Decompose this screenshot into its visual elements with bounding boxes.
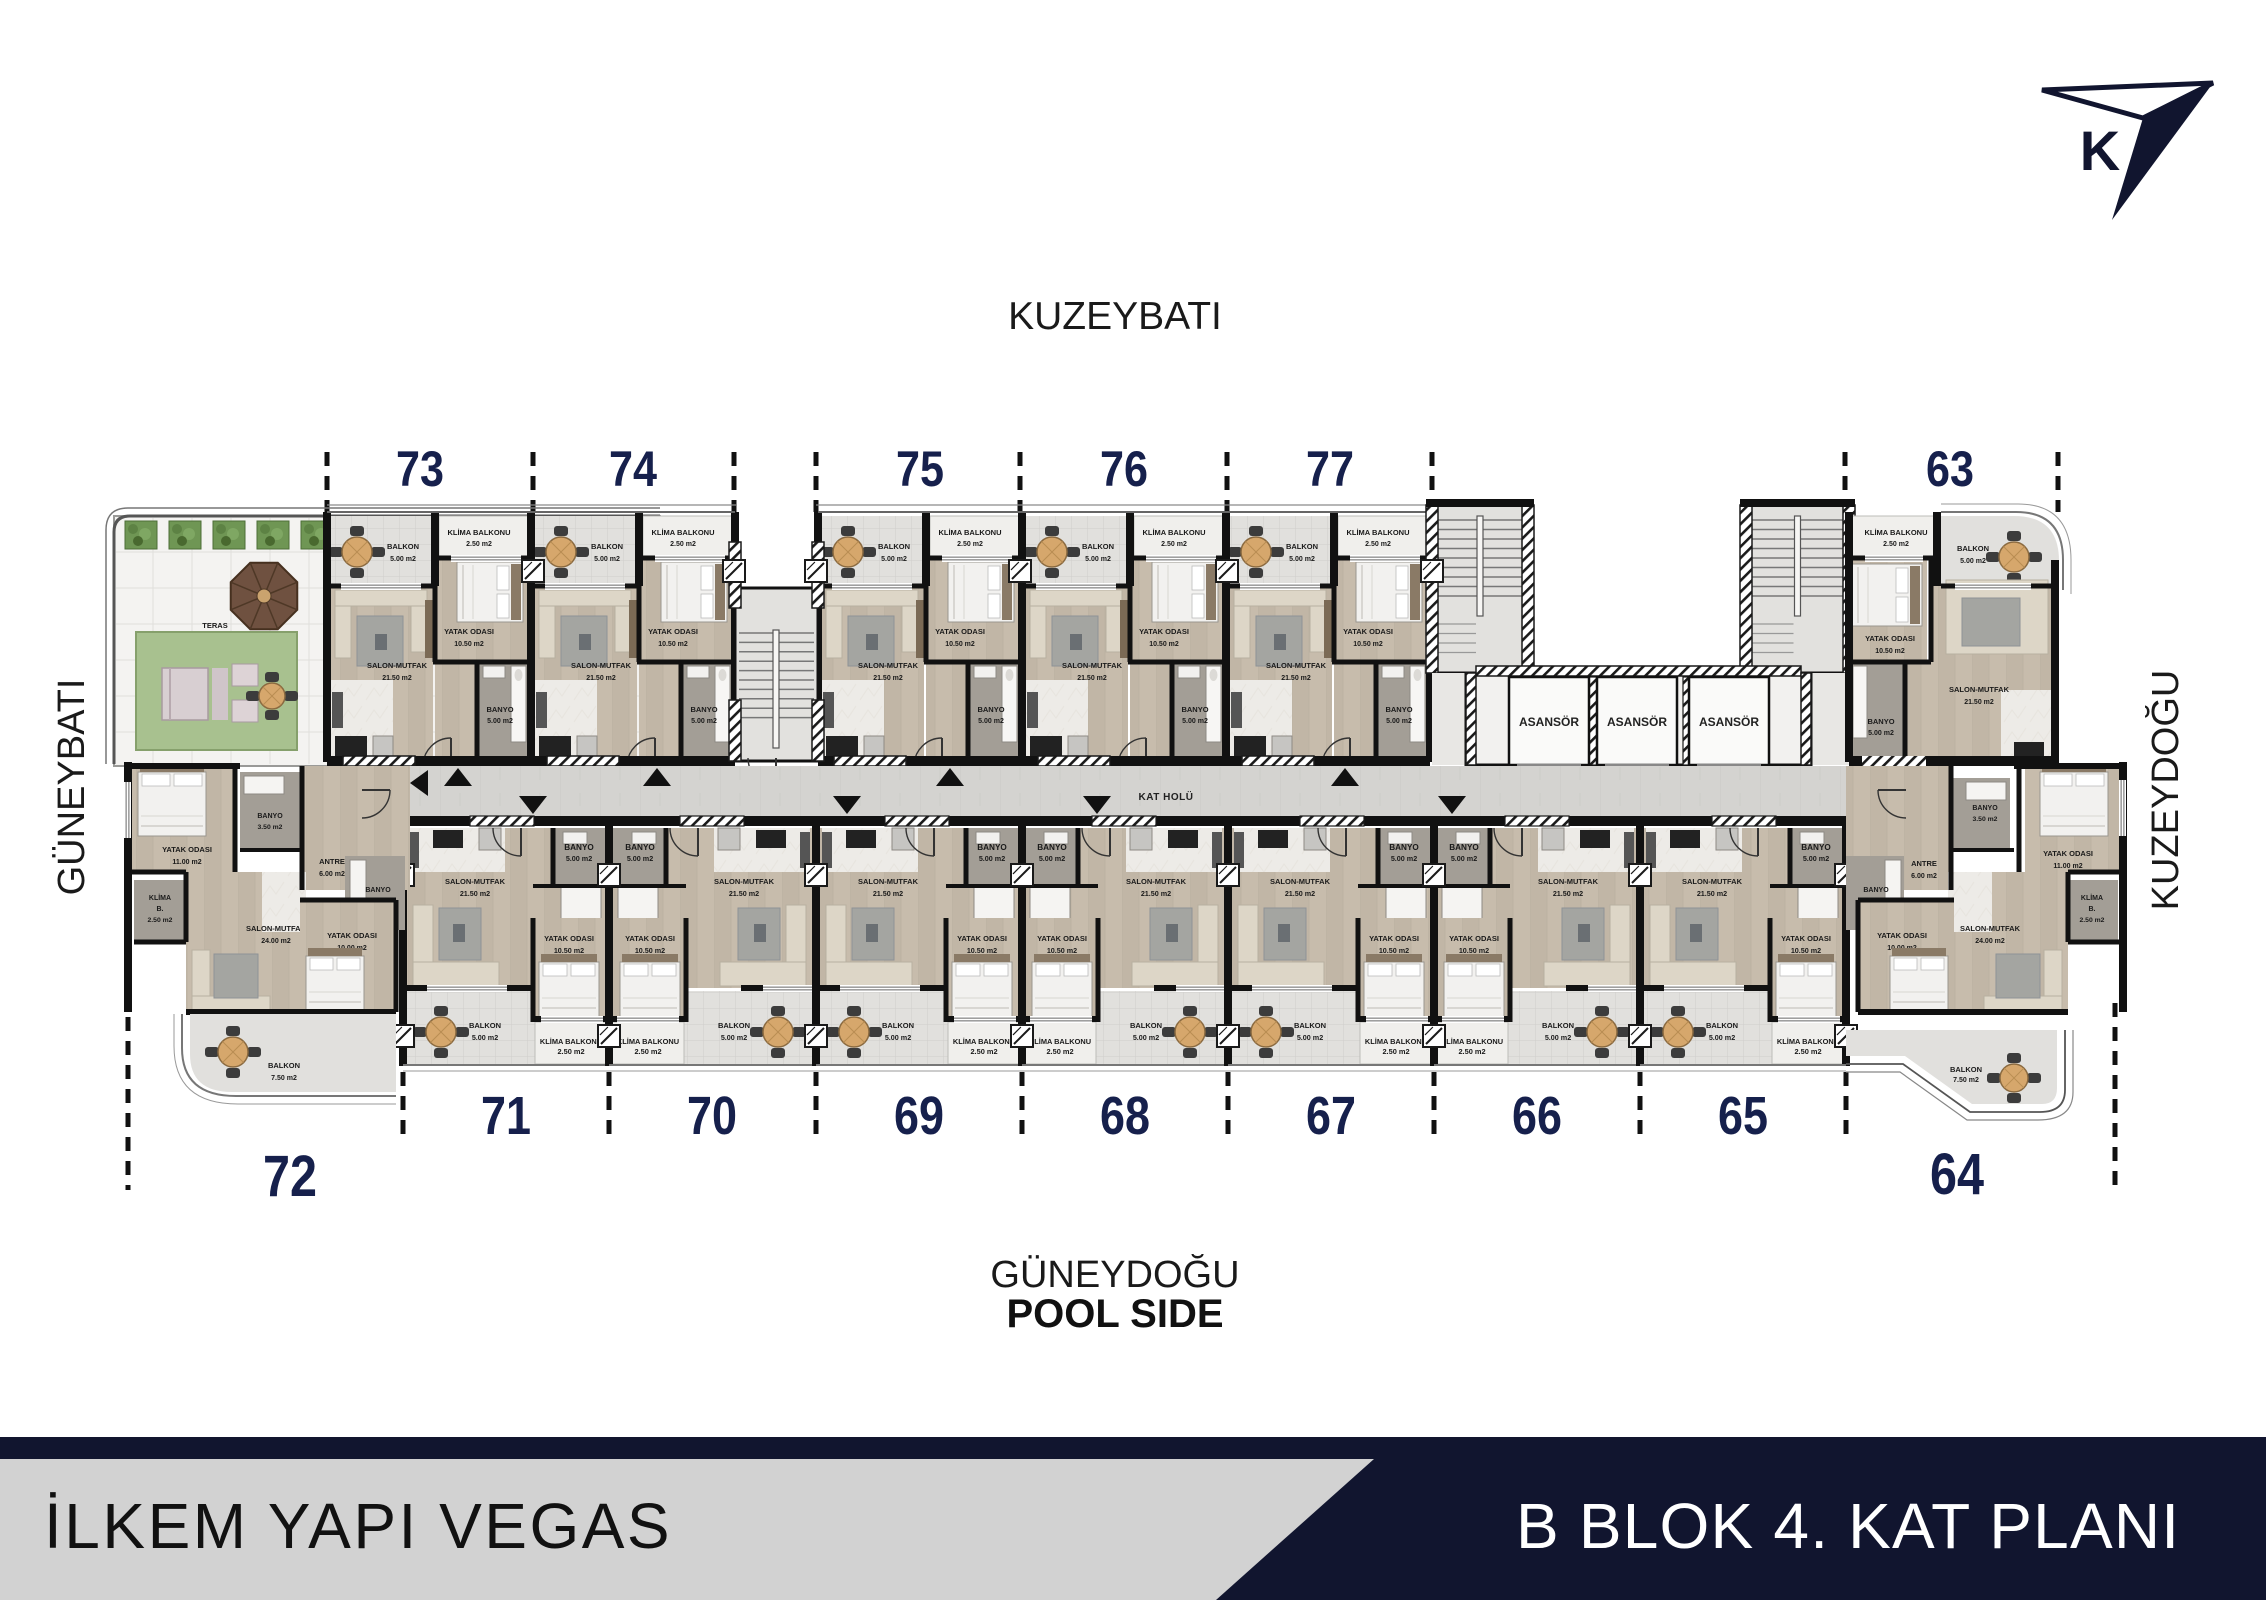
svg-text:BANYO: BANYO <box>1037 843 1067 852</box>
svg-text:SALON-MUTFAK: SALON-MUTFAK <box>858 877 919 886</box>
svg-text:21.50 m2: 21.50 m2 <box>1141 889 1171 898</box>
svg-text:BANYO: BANYO <box>1385 705 1412 714</box>
svg-text:5.00 m2: 5.00 m2 <box>1868 730 1894 737</box>
svg-text:BANYO: BANYO <box>977 843 1007 852</box>
svg-text:ASANSÖR: ASANSÖR <box>1699 714 1759 729</box>
svg-text:KLİMA BALKONU: KLİMA BALKONU <box>1864 528 1927 537</box>
svg-text:KLİMA BALKONU: KLİMA BALKONU <box>447 528 510 537</box>
svg-text:21.50 m2: 21.50 m2 <box>1077 675 1107 682</box>
svg-text:YATAK ODASI: YATAK ODASI <box>1343 627 1393 636</box>
svg-text:10.50 m2: 10.50 m2 <box>1149 641 1179 648</box>
svg-text:11.00 m2: 11.00 m2 <box>2053 863 2082 870</box>
svg-text:BANYO: BANYO <box>1181 705 1208 714</box>
svg-text:ANTRE: ANTRE <box>319 857 345 866</box>
svg-text:SALON-MUTFAK: SALON-MUTFAK <box>246 924 307 933</box>
svg-text:2.50 m2: 2.50 m2 <box>2080 917 2105 924</box>
svg-text:YATAK ODASI: YATAK ODASI <box>625 934 675 943</box>
svg-text:KLİMA BALKONU: KLİMA BALKONU <box>1346 528 1409 537</box>
svg-text:73: 73 <box>396 441 444 497</box>
svg-text:YATAK ODASI: YATAK ODASI <box>1865 634 1915 643</box>
svg-text:BALKON: BALKON <box>1957 544 1989 553</box>
svg-text:10.50 m2: 10.50 m2 <box>1353 641 1383 648</box>
svg-text:BANYO: BANYO <box>1867 717 1894 726</box>
svg-text:5.00 m2: 5.00 m2 <box>487 718 513 725</box>
svg-text:21.50 m2: 21.50 m2 <box>1697 889 1727 898</box>
svg-text:24.00 m2: 24.00 m2 <box>1975 938 2005 945</box>
svg-text:5.00 m2: 5.00 m2 <box>1451 854 1477 863</box>
svg-text:75: 75 <box>896 441 944 497</box>
svg-text:69: 69 <box>894 1086 944 1146</box>
svg-text:21.50 m2: 21.50 m2 <box>382 675 412 682</box>
svg-text:BALKON: BALKON <box>882 1021 914 1030</box>
svg-text:KLİMA BALKONU: KLİMA BALKONU <box>1441 1037 1503 1046</box>
svg-text:BANYO: BANYO <box>1389 843 1419 852</box>
svg-text:BANYO: BANYO <box>1801 843 1831 852</box>
svg-text:10.50 m2: 10.50 m2 <box>635 946 665 955</box>
svg-text:5.00 m2: 5.00 m2 <box>1039 854 1065 863</box>
svg-text:2.50 m2: 2.50 m2 <box>1794 1047 1821 1056</box>
svg-text:5.00 m2: 5.00 m2 <box>978 718 1004 725</box>
svg-text:66: 66 <box>1512 1086 1562 1146</box>
svg-text:2.50 m2: 2.50 m2 <box>1382 1047 1409 1056</box>
svg-text:65: 65 <box>1718 1086 1768 1146</box>
svg-text:5.00 m2: 5.00 m2 <box>390 556 416 563</box>
svg-text:BANYO: BANYO <box>1863 887 1889 894</box>
svg-text:POOL SIDE: POOL SIDE <box>1006 1292 1223 1336</box>
svg-text:BALKON: BALKON <box>1950 1065 1982 1074</box>
svg-text:5.00 m2: 5.00 m2 <box>627 854 653 863</box>
svg-text:2.50 m2: 2.50 m2 <box>1046 1047 1073 1056</box>
svg-text:BALKON: BALKON <box>469 1021 501 1030</box>
svg-text:10.50 m2: 10.50 m2 <box>1379 946 1409 955</box>
svg-text:5.00 m2: 5.00 m2 <box>1133 1033 1159 1042</box>
svg-text:BALKON: BALKON <box>718 1021 750 1030</box>
svg-text:5.00 m2: 5.00 m2 <box>1803 854 1829 863</box>
svg-text:21.50 m2: 21.50 m2 <box>1553 889 1583 898</box>
svg-text:21.50 m2: 21.50 m2 <box>873 675 903 682</box>
svg-text:5.00 m2: 5.00 m2 <box>881 556 907 563</box>
svg-text:5.00 m2: 5.00 m2 <box>979 854 1005 863</box>
svg-text:SALON-MUTFAK: SALON-MUTFAK <box>1270 877 1331 886</box>
svg-text:10.50 m2: 10.50 m2 <box>1459 946 1489 955</box>
svg-text:6.00 m2: 6.00 m2 <box>319 871 345 878</box>
svg-text:SALON-MUTFAK: SALON-MUTFAK <box>1266 661 1327 670</box>
svg-text:BANYO: BANYO <box>564 843 594 852</box>
svg-text:5.00 m2: 5.00 m2 <box>1709 1033 1735 1042</box>
svg-text:SALON-MUTFAK: SALON-MUTFAK <box>1960 924 2021 933</box>
svg-text:63: 63 <box>1926 441 1974 497</box>
svg-text:3.50 m2: 3.50 m2 <box>1973 816 1998 823</box>
svg-text:KLİMA: KLİMA <box>149 894 171 902</box>
svg-text:2.50 m2: 2.50 m2 <box>1365 541 1391 548</box>
svg-text:BALKON: BALKON <box>1082 542 1114 551</box>
svg-text:BALKON: BALKON <box>1706 1021 1738 1030</box>
svg-text:6.00 m2: 6.00 m2 <box>1911 873 1937 880</box>
svg-text:YATAK ODASI: YATAK ODASI <box>935 627 985 636</box>
svg-text:5.00 m2: 5.00 m2 <box>1545 1033 1571 1042</box>
svg-text:5.00 m2: 5.00 m2 <box>566 854 592 863</box>
svg-text:5.00 m2: 5.00 m2 <box>885 1033 911 1042</box>
svg-text:5.00 m2: 5.00 m2 <box>1960 558 1986 565</box>
svg-text:KLİMA: KLİMA <box>2081 894 2103 902</box>
svg-text:BANYO: BANYO <box>486 705 513 714</box>
svg-text:SALON-MUTFAK: SALON-MUTFAK <box>445 877 506 886</box>
svg-text:2.50 m2: 2.50 m2 <box>957 541 983 548</box>
svg-text:2.50 m2: 2.50 m2 <box>634 1047 661 1056</box>
svg-text:5.00 m2: 5.00 m2 <box>472 1033 498 1042</box>
svg-text:BALKON: BALKON <box>878 542 910 551</box>
svg-text:2.50 m2: 2.50 m2 <box>1161 541 1187 548</box>
svg-text:70: 70 <box>687 1086 737 1146</box>
svg-text:67: 67 <box>1306 1086 1356 1146</box>
svg-text:BALKON: BALKON <box>1542 1021 1574 1030</box>
svg-text:BALKON: BALKON <box>1294 1021 1326 1030</box>
svg-text:5.00 m2: 5.00 m2 <box>1386 718 1412 725</box>
svg-text:YATAK ODASI: YATAK ODASI <box>1781 934 1831 943</box>
svg-text:BANYO: BANYO <box>257 813 283 820</box>
svg-text:21.50 m2: 21.50 m2 <box>1964 699 1994 706</box>
svg-text:11.00 m2: 11.00 m2 <box>172 859 201 866</box>
svg-text:BALKON: BALKON <box>268 1061 300 1070</box>
svg-text:YATAK ODASI: YATAK ODASI <box>957 934 1007 943</box>
svg-text:YATAK ODASI: YATAK ODASI <box>1449 934 1499 943</box>
svg-text:10.50 m2: 10.50 m2 <box>1047 946 1077 955</box>
svg-text:5.00 m2: 5.00 m2 <box>1391 854 1417 863</box>
svg-text:KUZEYDOĞU: KUZEYDOĞU <box>2143 670 2187 911</box>
svg-text:77: 77 <box>1306 441 1354 497</box>
svg-text:7.50 m2: 7.50 m2 <box>1953 1077 1979 1084</box>
svg-text:YATAK ODASI: YATAK ODASI <box>444 627 494 636</box>
svg-text:ASANSÖR: ASANSÖR <box>1519 714 1579 729</box>
svg-text:3.50 m2: 3.50 m2 <box>258 824 283 831</box>
svg-text:B.: B. <box>157 906 164 913</box>
svg-text:YATAK ODASI: YATAK ODASI <box>544 934 594 943</box>
svg-text:SALON-MUTFAK: SALON-MUTFAK <box>367 661 428 670</box>
svg-text:74: 74 <box>609 441 657 497</box>
svg-text:KLİMA BALKONU: KLİMA BALKONU <box>938 528 1001 537</box>
svg-text:BANYO: BANYO <box>1972 805 1998 812</box>
svg-text:5.00 m2: 5.00 m2 <box>1297 1033 1323 1042</box>
svg-text:68: 68 <box>1100 1086 1150 1146</box>
svg-text:B.: B. <box>2089 906 2096 913</box>
svg-text:SALON-MUTFAK: SALON-MUTFAK <box>1949 685 2010 694</box>
svg-text:BALKON: BALKON <box>1130 1021 1162 1030</box>
svg-text:21.50 m2: 21.50 m2 <box>1285 889 1315 898</box>
svg-text:76: 76 <box>1100 441 1148 497</box>
svg-text:2.50 m2: 2.50 m2 <box>557 1047 584 1056</box>
svg-text:KAT HOLÜ: KAT HOLÜ <box>1139 790 1194 803</box>
svg-text:7.50 m2: 7.50 m2 <box>271 1075 297 1082</box>
svg-text:K: K <box>2080 119 2120 182</box>
svg-text:YATAK ODASI: YATAK ODASI <box>1877 931 1927 940</box>
svg-text:KLİMA BALKONU: KLİMA BALKONU <box>617 1037 679 1046</box>
svg-text:2.50 m2: 2.50 m2 <box>1883 541 1909 548</box>
svg-text:SALON-MUTFAK: SALON-MUTFAK <box>714 877 775 886</box>
svg-text:SALON-MUTFAK: SALON-MUTFAK <box>858 661 919 670</box>
svg-text:BALKON: BALKON <box>1286 542 1318 551</box>
svg-text:KLİMA BALKONU: KLİMA BALKONU <box>540 1037 602 1046</box>
svg-text:B BLOK 4. KAT PLANI: B BLOK 4. KAT PLANI <box>1516 1490 2180 1562</box>
svg-text:21.50 m2: 21.50 m2 <box>460 889 490 898</box>
svg-text:GÜNEYDOĞU: GÜNEYDOĞU <box>990 1252 1239 1296</box>
svg-text:BANYO: BANYO <box>625 843 655 852</box>
svg-text:5.00 m2: 5.00 m2 <box>691 718 717 725</box>
svg-text:ASANSÖR: ASANSÖR <box>1607 714 1667 729</box>
svg-text:10.50 m2: 10.50 m2 <box>967 946 997 955</box>
svg-text:2.50 m2: 2.50 m2 <box>148 917 173 924</box>
svg-text:YATAK ODASI: YATAK ODASI <box>1139 627 1189 636</box>
svg-text:KLİMA BALKONU: KLİMA BALKONU <box>1365 1037 1427 1046</box>
svg-text:GÜNEYBATI: GÜNEYBATI <box>51 679 93 896</box>
svg-text:2.50 m2: 2.50 m2 <box>466 541 492 548</box>
svg-text:2.50 m2: 2.50 m2 <box>1458 1047 1485 1056</box>
svg-text:KLİMA BALKONU: KLİMA BALKONU <box>1777 1037 1839 1046</box>
svg-text:BANYO: BANYO <box>1449 843 1479 852</box>
svg-text:BANYO: BANYO <box>977 705 1004 714</box>
svg-text:KLİMA BALKONU: KLİMA BALKONU <box>1029 1037 1091 1046</box>
svg-text:ANTRE: ANTRE <box>1911 859 1937 868</box>
svg-text:10.50 m2: 10.50 m2 <box>454 641 484 648</box>
svg-text:SALON-MUTFAK: SALON-MUTFAK <box>1126 877 1187 886</box>
svg-text:21.50 m2: 21.50 m2 <box>1281 675 1311 682</box>
svg-text:5.00 m2: 5.00 m2 <box>721 1033 747 1042</box>
svg-text:10.50 m2: 10.50 m2 <box>658 641 688 648</box>
svg-text:SALON-MUTFAK: SALON-MUTFAK <box>1062 661 1123 670</box>
svg-text:BANYO: BANYO <box>365 887 391 894</box>
svg-text:2.50 m2: 2.50 m2 <box>670 541 696 548</box>
svg-text:5.00 m2: 5.00 m2 <box>1085 556 1111 563</box>
svg-text:5.00 m2: 5.00 m2 <box>1289 556 1315 563</box>
svg-text:BALKON: BALKON <box>591 542 623 551</box>
svg-text:10.50 m2: 10.50 m2 <box>1791 946 1821 955</box>
svg-text:72: 72 <box>263 1144 317 1209</box>
svg-text:BANYO: BANYO <box>690 705 717 714</box>
svg-text:24.00 m2: 24.00 m2 <box>261 938 291 945</box>
svg-text:YATAK ODASI: YATAK ODASI <box>2043 849 2093 858</box>
svg-text:YATAK ODASI: YATAK ODASI <box>648 627 698 636</box>
svg-text:KLİMA BALKONU: KLİMA BALKONU <box>1142 528 1205 537</box>
svg-text:5.00 m2: 5.00 m2 <box>1182 718 1208 725</box>
svg-text:YATAK ODASI: YATAK ODASI <box>1369 934 1419 943</box>
svg-text:10.50 m2: 10.50 m2 <box>554 946 584 955</box>
svg-text:2.50 m2: 2.50 m2 <box>970 1047 997 1056</box>
svg-text:KLİMA BALKONU: KLİMA BALKONU <box>953 1037 1015 1046</box>
svg-text:10.50 m2: 10.50 m2 <box>1875 648 1905 655</box>
svg-text:SALON-MUTFAK: SALON-MUTFAK <box>571 661 632 670</box>
svg-text:21.50 m2: 21.50 m2 <box>729 889 759 898</box>
svg-text:KLİMA BALKONU: KLİMA BALKONU <box>651 528 714 537</box>
svg-text:SALON-MUTFAK: SALON-MUTFAK <box>1538 877 1599 886</box>
svg-text:21.50 m2: 21.50 m2 <box>586 675 616 682</box>
svg-text:TERAS: TERAS <box>202 621 227 630</box>
svg-text:İLKEM YAPI VEGAS: İLKEM YAPI VEGAS <box>44 1490 672 1562</box>
svg-text:KUZEYBATI: KUZEYBATI <box>1008 295 1222 338</box>
svg-text:64: 64 <box>1930 1142 1984 1207</box>
svg-text:71: 71 <box>481 1086 531 1146</box>
svg-text:10.50 m2: 10.50 m2 <box>945 641 975 648</box>
svg-text:21.50 m2: 21.50 m2 <box>873 889 903 898</box>
svg-text:YATAK ODASI: YATAK ODASI <box>1037 934 1087 943</box>
svg-text:YATAK ODASI: YATAK ODASI <box>162 845 212 854</box>
svg-text:YATAK ODASI: YATAK ODASI <box>327 931 377 940</box>
svg-text:SALON-MUTFAK: SALON-MUTFAK <box>1682 877 1743 886</box>
svg-text:BALKON: BALKON <box>387 542 419 551</box>
svg-text:5.00 m2: 5.00 m2 <box>594 556 620 563</box>
